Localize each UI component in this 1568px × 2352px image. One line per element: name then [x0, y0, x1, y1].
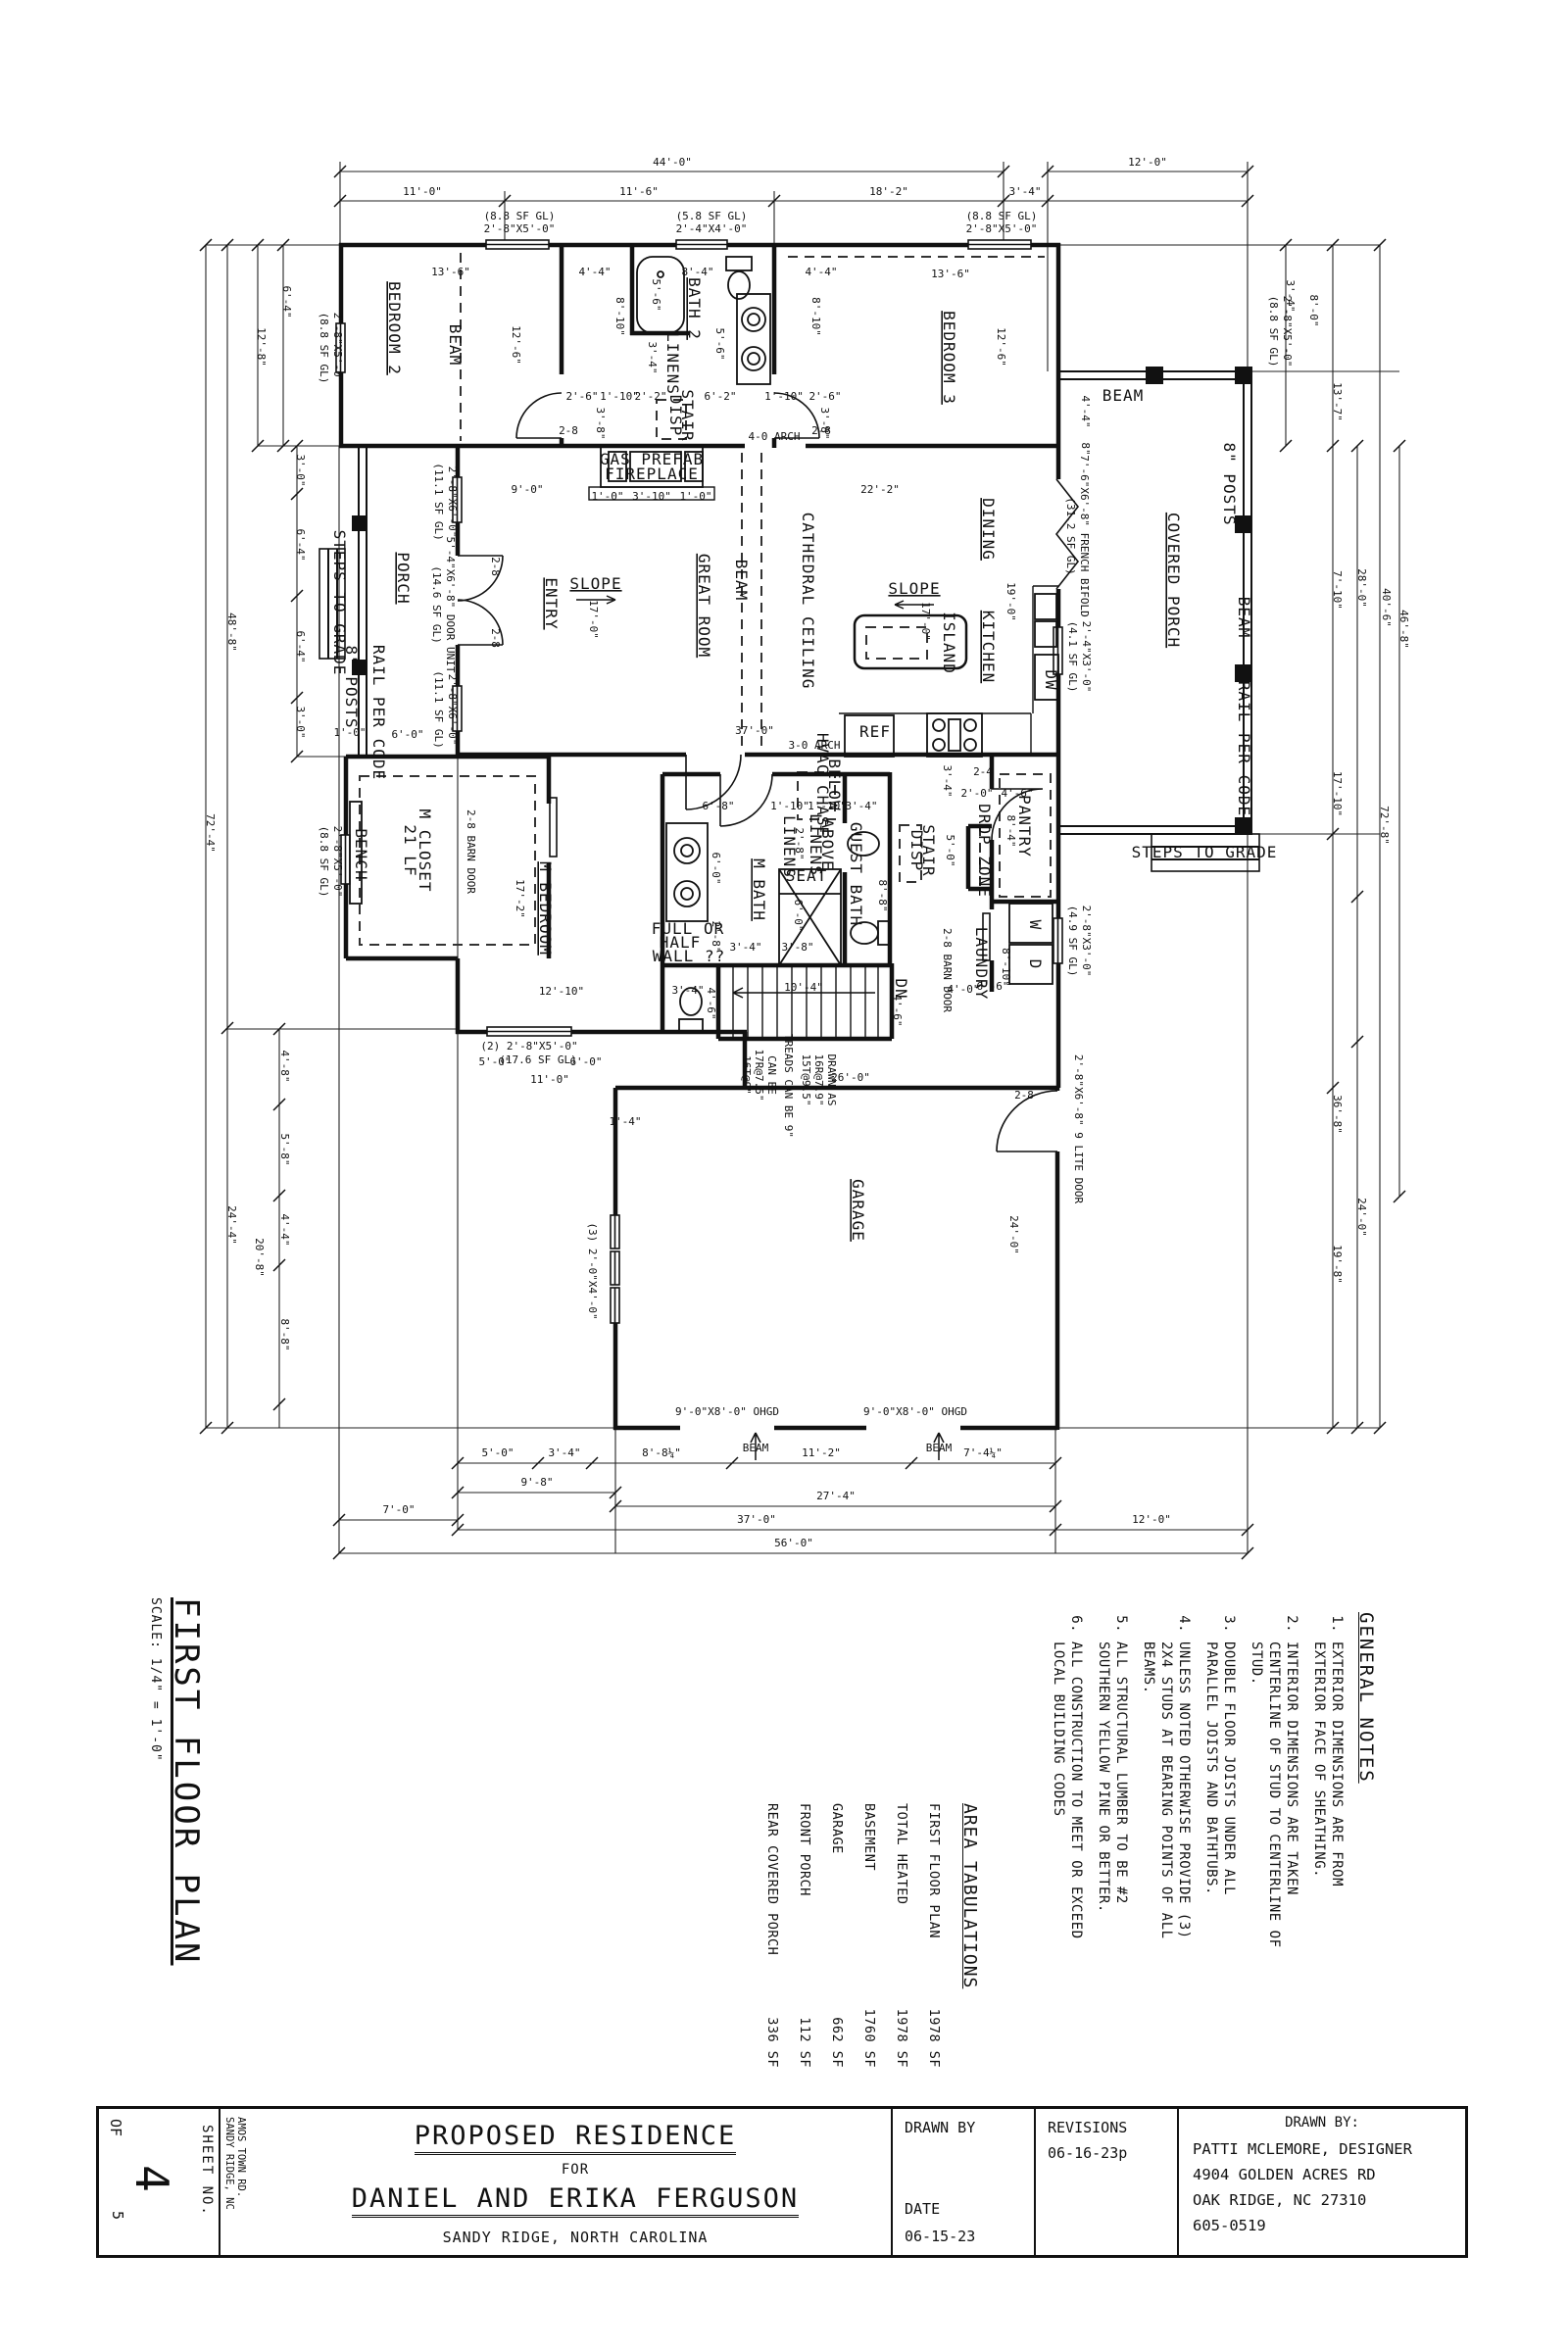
- dimension-label: (8.8 SF GL): [484, 210, 556, 222]
- dimension-label: 13'-6": [931, 268, 970, 280]
- tabulation-row: REAR COVERED PORCH336 SF: [764, 1803, 780, 2068]
- dimension-label: 8'-8": [876, 879, 889, 911]
- general-note-item: UNLESS NOTED OTHERWISE PROVIDE (3) 2X4 S…: [1140, 1641, 1193, 1965]
- dimension-label: 2'-8"X6'-0": [446, 466, 459, 538]
- room-label: ENTRY: [542, 577, 561, 629]
- designer-line: 605-0519: [1193, 2213, 1451, 2238]
- dimension-label: 17R@7.5": [753, 1050, 765, 1102]
- dimension-label: 2-4: [973, 765, 993, 778]
- dimension-label: 11'-0": [403, 185, 442, 198]
- room-label: STEPS TO GRADE: [1132, 843, 1278, 861]
- room-label: SEAT: [786, 866, 828, 885]
- dimension-label: 5'-8": [278, 1133, 291, 1165]
- dimension-label: 3'-8": [781, 941, 813, 954]
- general-notes: GENERAL NOTES EXTERIOR DIMENSIONS ARE FR…: [980, 1612, 1377, 2063]
- dimension-label: 17'-0": [919, 602, 932, 641]
- room-label: BENCH: [352, 828, 370, 880]
- room-label: STEPS TO GRADE: [330, 530, 349, 676]
- tabulation-label: GARAGE: [829, 1803, 845, 1854]
- dimension-label: (8.8 SF GL): [1267, 296, 1280, 367]
- dimension-label: (17.6 SF GL): [499, 1053, 576, 1066]
- dimension-label: 8'-10": [809, 297, 822, 336]
- dimension-label: 2'-8"X5'-0": [484, 222, 556, 235]
- dimension-label: 2'-4"X4'-0": [676, 222, 748, 235]
- dimension-label: 2'-4"X3'-0": [1080, 621, 1093, 693]
- dimension-label: 16T@9": [740, 1055, 753, 1095]
- dimension-label: 18'-2": [869, 185, 908, 198]
- dimension-label: 44'-0": [653, 156, 692, 169]
- dimension-label: 13'-6": [431, 266, 470, 278]
- dimension-label: 48'-8": [225, 612, 238, 652]
- room-label: BEAM: [1102, 386, 1145, 405]
- project-cell: AMOS TOWN RD. SANDY RIDGE, NC PROPOSED R…: [220, 2109, 893, 2255]
- dimension-label: 1'-10": [764, 390, 804, 403]
- room-label: BEAM: [1235, 597, 1253, 639]
- dimension-label: 3'-4": [548, 1446, 580, 1459]
- floor-plan-drawing: BEDROOM 2BATH 2BEDROOM 3DININGKITCHENGRE…: [98, 127, 1470, 1578]
- tabulation-label: FIRST FLOOR PLAN: [926, 1803, 942, 1938]
- dimension-label: 3'-4": [729, 941, 761, 954]
- dimension-label: 2-8: [1014, 1089, 1034, 1102]
- dimension-label: 2'-8"X6'-0": [446, 674, 459, 746]
- designer-line: PATTI MCLEMORE, DESIGNER: [1193, 2136, 1451, 2162]
- dimension-label: 6'-0": [569, 1055, 602, 1068]
- tabulation-row: GARAGE662 SF: [829, 1803, 845, 2068]
- dimension-label: 2'-8"X5'-0": [331, 826, 344, 898]
- room-label: 21 LF: [401, 824, 419, 876]
- dimension-label: 46'-8": [1397, 610, 1410, 649]
- toilet-tank: [726, 257, 752, 270]
- dimension-label: (5.8 SF GL): [676, 210, 748, 222]
- room-label: ISLAND: [940, 612, 958, 674]
- dimension-label: 3'-4": [941, 764, 954, 797]
- project-title: PROPOSED RESIDENCE: [415, 2121, 737, 2155]
- dimension-label: 12'-0": [1128, 156, 1167, 169]
- dimension-label: 6'-0": [792, 899, 805, 931]
- dimension-label: 3'-8": [594, 407, 607, 439]
- dimension-label: 72'-4": [204, 813, 217, 853]
- dimension-label: 3'-4": [646, 341, 659, 373]
- designer-cell: DRAWN BY: PATTI MCLEMORE, DESIGNER4904 G…: [1179, 2109, 1465, 2255]
- room-label: SLOPE: [569, 574, 621, 593]
- designer-heading: DRAWN BY:: [1193, 2115, 1451, 2131]
- tabulation-label: BASEMENT: [861, 1803, 877, 1871]
- room-label: COVERED PORCH: [1164, 513, 1183, 648]
- dimension-label: 24'-0": [1355, 1198, 1368, 1237]
- dimension-label: (3) 2'-0"X4'-0": [586, 1222, 599, 1319]
- room-label: M BATH: [750, 858, 768, 921]
- page-title: FIRST FLOOR PLAN: [167, 1597, 206, 2024]
- revisions-label: REVISIONS: [1048, 2119, 1165, 2136]
- revisions-cell: REVISIONS 06-16-23p: [1036, 2109, 1179, 2255]
- sheet-number: 4: [125, 2165, 178, 2192]
- dimension-label: 5'-6": [650, 278, 662, 311]
- general-note-item: ALL CONSTRUCTION TO MEET OR EXCEED LOCAL…: [1050, 1641, 1085, 1965]
- dimension-label: 13'-7": [1331, 382, 1344, 421]
- room-label: DW: [1042, 669, 1060, 690]
- dimension-label: (8.8 SF GL): [318, 826, 330, 898]
- dimension-label: 10'-4": [784, 981, 823, 994]
- room-label: DINING: [979, 498, 998, 561]
- dimension-label: 6'-4": [280, 285, 293, 318]
- dimension-label: 9'-0": [511, 483, 543, 496]
- room-label: BEDROOM 3: [940, 311, 958, 405]
- room-label: RAIL PER CODE: [369, 645, 388, 780]
- dimension-label: 12'-8": [255, 327, 268, 367]
- dimension-label: 1'-0": [591, 490, 623, 503]
- dimension-label: 26'-0": [831, 1071, 870, 1084]
- dimension-label: 1'-4": [609, 1115, 641, 1128]
- room-label: REF: [859, 722, 891, 741]
- dimension-label: (4.1 SF GL): [1066, 621, 1079, 693]
- dimension-label: 1'-10": [600, 390, 639, 403]
- for-label: FOR: [260, 2162, 891, 2178]
- dimension-label: (2) 2'-8"X5'-0": [480, 1040, 577, 1053]
- dimension-label: 5'-0": [944, 834, 956, 866]
- area-tabulations: AREA TABULATIONS FIRST FLOOR PLAN1978 SF…: [686, 1803, 980, 2068]
- dimension-label: 19'-0": [1004, 582, 1017, 621]
- dimension-label: 6'-6": [976, 980, 1008, 993]
- project-location: SANDY RIDGE, NORTH CAROLINA: [260, 2229, 891, 2246]
- tabulation-value: 1760 SF: [861, 2009, 877, 2068]
- dimension-label: TREADS CAN BE 9": [782, 1034, 795, 1138]
- dimension-label: 7'-4¼": [963, 1446, 1003, 1459]
- room-label: BEDROOM 2: [385, 281, 404, 375]
- dimension-label: 8'-10": [613, 297, 626, 336]
- tabulation-value: 112 SF: [797, 2017, 812, 2068]
- tabulation-label: REAR COVERED PORCH: [764, 1803, 780, 1955]
- revision-date: 06-16-23p: [1048, 2144, 1165, 2162]
- dimension-label: 2'-8"X3'-0": [1080, 906, 1093, 977]
- dimension-label: 8": [1079, 442, 1092, 455]
- room-label: GREAT ROOM: [695, 554, 713, 658]
- room-label: D: [1026, 959, 1045, 970]
- stair-treads: [733, 965, 878, 1039]
- dimension-label: 19'-8": [1331, 1245, 1344, 1284]
- of-label: OF: [107, 2119, 124, 2136]
- room-label: BEAM: [732, 560, 751, 602]
- dimension-label: 3'-4": [671, 984, 704, 997]
- dimension-label: 2-8: [489, 557, 502, 576]
- dimension-label: 3'-4": [1008, 185, 1041, 198]
- tabulation-value: 1978 SF: [926, 2009, 942, 2068]
- room-label: 8" POSTS: [1220, 442, 1239, 525]
- dimension-label: 17'-10": [1331, 771, 1344, 816]
- room-label: W: [1026, 920, 1045, 931]
- dimension-label: 11'-2": [802, 1446, 841, 1459]
- dimension-label: 24'-0": [1007, 1215, 1020, 1254]
- designer-lines: PATTI MCLEMORE, DESIGNER4904 GOLDEN ACRE…: [1193, 2136, 1451, 2238]
- dimension-label: 3'-0": [294, 454, 307, 486]
- dimension-label: 20'-8": [253, 1238, 266, 1277]
- room-label: KITCHEN: [979, 611, 998, 683]
- dimension-label: 37'-0": [737, 1513, 776, 1526]
- dimension-label: 6'-0": [391, 728, 423, 741]
- area-tabulations-heading: AREA TABULATIONS: [959, 1803, 980, 2068]
- tabulation-row: TOTAL HEATED1978 SF: [894, 1803, 909, 2068]
- sheet-number-cell: OF 4 5 SHEET NO.: [99, 2109, 220, 2255]
- tabulation-row: FRONT PORCH112 SF: [797, 1803, 812, 2068]
- general-notes-list: EXTERIOR DIMENSIONS ARE FROM EXTERIOR FA…: [1050, 1612, 1346, 1965]
- dimension-label: 4'-4": [278, 1213, 291, 1246]
- dimension-label: 8'-4": [681, 266, 713, 278]
- dimension-label: (4.9 SF GL): [1066, 906, 1079, 977]
- dimension-label: 9'-8": [520, 1476, 553, 1489]
- porch-rails: [319, 367, 1259, 871]
- room-label: FIREPLACE: [605, 465, 699, 483]
- dimension-label: 3-0 ARCH: [789, 739, 841, 752]
- dimension-label: 36'-8": [1331, 1095, 1344, 1134]
- dimension-label: 72'-8": [1378, 806, 1391, 845]
- dimension-label: 12'-0": [1132, 1513, 1171, 1526]
- dimension-label: 1'-10": [770, 800, 809, 812]
- dimension-label: 5'-6": [713, 327, 726, 360]
- room-label: GUEST BATH: [847, 822, 865, 926]
- tabulation-label: TOTAL HEATED: [894, 1803, 909, 1905]
- dimension-label: 2-8: [811, 424, 831, 437]
- tabulation-value: 662 SF: [829, 2017, 845, 2068]
- designer-line: 4904 GOLDEN ACRES RD: [1193, 2162, 1451, 2187]
- dimension-label: 2'-6": [565, 390, 598, 403]
- site-address: AMOS TOWN RD. SANDY RIDGE, NC: [223, 2117, 247, 2210]
- dimension-label: 9'-0"X8'-0" OHGD: [863, 1405, 967, 1418]
- dimension-label: 7'-0": [382, 1503, 415, 1516]
- dimension-label: 4'-6": [1001, 787, 1033, 800]
- dimension-label: 27'-4": [816, 1490, 856, 1502]
- client-name: DANIEL AND ERIKA FERGUSON: [352, 2183, 799, 2218]
- dimension-label: 15T@9.5": [800, 1054, 812, 1106]
- dimension-label: CAN BE: [765, 1055, 778, 1095]
- date-label: DATE: [905, 2200, 1022, 2218]
- room-label: GARAGE: [849, 1179, 867, 1242]
- dimension-label: 6'-4": [294, 528, 307, 561]
- dimension-label: (8.8 SF GL): [966, 210, 1038, 222]
- dimension-label: 28'-0": [1355, 568, 1368, 608]
- dimension-label: 2'-8": [710, 920, 722, 953]
- dimension-label: 4-0 ARCH: [749, 430, 801, 443]
- sheet-no-label: SHEET NO.: [199, 2125, 215, 2217]
- dimension-label: 17'-2": [514, 879, 526, 918]
- dimension-label: 3'-4": [1284, 279, 1297, 312]
- dimension-label: 24'-4": [225, 1205, 238, 1245]
- dimension-label: 12'-10": [539, 985, 584, 998]
- tabulation-label: FRONT PORCH: [797, 1803, 812, 1896]
- tabulation-value: 336 SF: [764, 2017, 780, 2068]
- dimension-label: 12'-6": [510, 325, 522, 365]
- dimension-label: 2'-2": [634, 390, 666, 403]
- dimension-label: 40'-6": [1380, 588, 1393, 627]
- drawing-scale: SCALE: 1/4" = 1'-0": [148, 1597, 163, 2024]
- tabulation-value: 1978 SF: [894, 2009, 909, 2068]
- dimension-label: 4'-4": [1079, 395, 1092, 427]
- dimension-label: 1'-10": [808, 800, 847, 812]
- dimension-label: 11'-6": [619, 185, 659, 198]
- general-note-item: DOUBLE FLOOR JOISTS UNDER ALL PARALLEL J…: [1202, 1641, 1238, 1965]
- sheet-title-block: FIRST FLOOR PLAN SCALE: 1/4" = 1'-0": [147, 1597, 206, 2024]
- dimension-label: BEAM: [743, 1442, 769, 1454]
- of-total: 5: [109, 2211, 126, 2220]
- room-label: CATHEDRAL CEILING: [799, 513, 817, 690]
- dimension-label: 9'-0"X8'-0" OHGD: [675, 1405, 779, 1418]
- date-value: 06-15-23: [905, 2228, 1022, 2245]
- drawn-by-label: DRAWN BY: [905, 2119, 1022, 2136]
- room-label: STAIR: [678, 389, 697, 441]
- dimension-label: 2-8: [559, 424, 578, 437]
- dimension-label: 6'-4": [294, 630, 307, 662]
- dimension-label: 37'-0": [735, 724, 774, 737]
- dimension-label: 11'-0": [530, 1073, 569, 1086]
- tabulation-row: FIRST FLOOR PLAN1978 SF: [926, 1803, 942, 2068]
- tabulation-row: BASEMENT1760 SF: [861, 1803, 877, 2068]
- dimension-label: (14.6 SF GL): [430, 565, 443, 643]
- dimension-label: 8'-4": [1004, 814, 1017, 847]
- general-note-item: EXTERIOR DIMENSIONS ARE FROM EXTERIOR FA…: [1310, 1641, 1346, 1965]
- dimension-label: 8'-8¼": [642, 1446, 681, 1459]
- general-note-item: ALL STRUCTURAL LUMBER TO BE #2 SOUTHERN …: [1095, 1641, 1130, 1965]
- dimension-label: 6'-8": [702, 800, 734, 812]
- dimension-label: 12'-6": [995, 327, 1007, 367]
- dimension-label: 3'-0": [294, 706, 307, 738]
- dimension-label: 56'-0": [774, 1537, 813, 1549]
- drawn-by-cell: DRAWN BY DATE 06-15-23: [893, 2109, 1036, 2255]
- dimension-label: 4'-4": [578, 266, 611, 278]
- dimension-label: (31.2 SF GL): [1064, 497, 1077, 574]
- dimension-label: 3'-10": [632, 490, 671, 503]
- dimension-label: 6'-2": [704, 390, 736, 403]
- room-label: PORCH: [394, 552, 413, 604]
- dimension-label: 8'-0": [1307, 294, 1320, 326]
- dimension-ticks: [200, 166, 1405, 1559]
- dimension-label: BEAM: [926, 1442, 953, 1454]
- dimension-label: 4'-4": [805, 266, 837, 278]
- area-tabulations-rows: FIRST FLOOR PLAN1978 SFTOTAL HEATED1978 …: [764, 1803, 942, 2068]
- dimension-label: 2-8: [489, 628, 502, 648]
- dimension-label: 7'-6"X6'-8" FRENCH BIFOLD: [1078, 455, 1091, 617]
- dimension-label: 2'-8": [793, 827, 806, 859]
- room-label: SLOPE: [888, 579, 940, 598]
- designer-line: OAK RIDGE, NC 27310: [1193, 2187, 1451, 2213]
- dimension-label: 3'-4": [845, 800, 877, 812]
- dimension-label: 2'-8"X5'-0": [966, 222, 1038, 235]
- dimension-label: 5'-0": [481, 1446, 514, 1459]
- room-label: LINENS: [663, 332, 682, 395]
- dimension-label: 16R@7.9": [812, 1054, 825, 1106]
- room-label: DROP ZONE: [975, 804, 994, 898]
- dimension-label: 2-8 BARN DOOR: [465, 809, 477, 894]
- dimension-label: 4'-6": [891, 994, 904, 1026]
- room-label: M BEDROOM: [536, 861, 555, 955]
- room-label: RAIL PER CODE: [1235, 681, 1253, 816]
- dimension-label: 22'-2": [860, 483, 900, 496]
- room-label: BATH 2: [685, 277, 704, 340]
- dimension-label: 1'-0": [679, 490, 711, 503]
- general-notes-heading: GENERAL NOTES: [1355, 1612, 1377, 2063]
- dimension-label: 5'-4"X6'-8" DOOR UNIT: [444, 536, 457, 672]
- dimension-label: 2'-6": [808, 390, 841, 403]
- dimension-label: 4'-6": [705, 987, 717, 1019]
- dimension-label: (11.1 SF GL): [432, 670, 445, 748]
- title-block: OF 4 5 SHEET NO. AMOS TOWN RD. SANDY RID…: [96, 2106, 1468, 2258]
- dimension-label: 4'-8": [278, 1050, 291, 1082]
- room-label: BEAM: [446, 324, 465, 367]
- kitchen-sink: [1035, 594, 1056, 619]
- dimension-label: 8'-8": [278, 1318, 291, 1350]
- room-label: STAIR: [919, 824, 938, 876]
- dimension-label: 2-8 BARN DOOR: [941, 928, 954, 1012]
- general-note-item: INTERIOR DIMENSIONS ARE TAKEN CENTERLINE…: [1248, 1641, 1300, 1965]
- dimension-label: 2'-0": [960, 787, 993, 800]
- dimension-label: (8.8 SF GL): [318, 313, 330, 384]
- dimension-label: 2'-8"X5'-0": [331, 313, 344, 384]
- dimension-label: 17'-0": [587, 600, 600, 639]
- dimension-label: 7'-10": [1331, 570, 1344, 610]
- dimension-label: 1'-0": [333, 726, 366, 739]
- dimension-label: (11.1 SF GL): [432, 463, 445, 540]
- dimension-label: 6'-0": [710, 852, 722, 884]
- drawing-sheet: BEDROOM 2BATH 2BEDROOM 3DININGKITCHENGRE…: [0, 0, 1568, 2352]
- dimension-label: 2'-8"X6'-8" 9 LITE DOOR: [1072, 1054, 1085, 1204]
